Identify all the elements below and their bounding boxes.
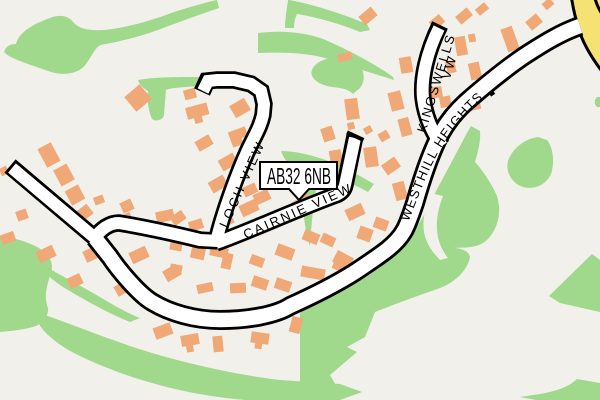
- svg-text:AB32 6NB: AB32 6NB: [267, 163, 331, 189]
